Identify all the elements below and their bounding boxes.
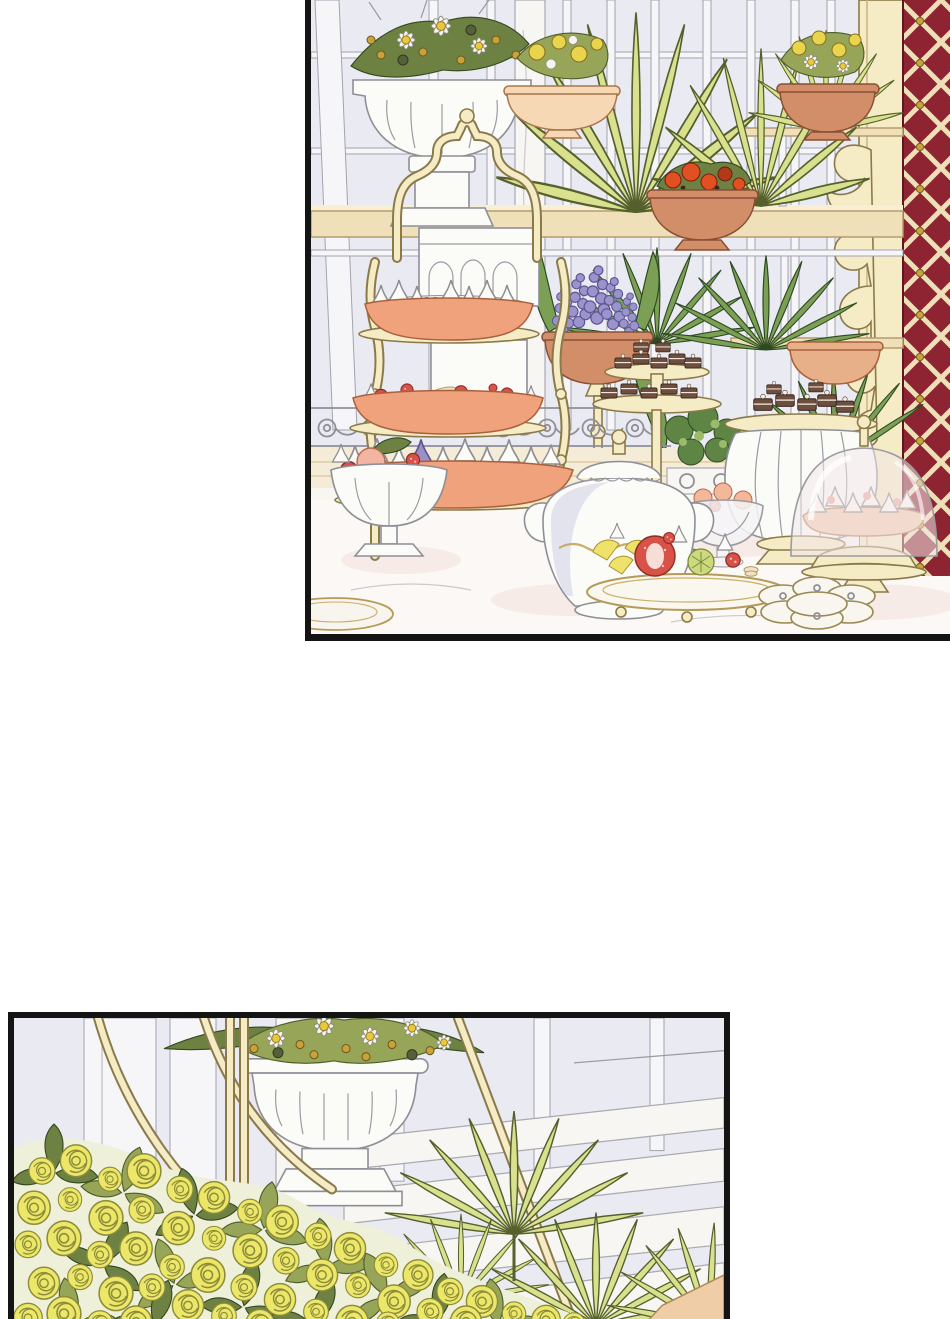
panel-bottom [8,1012,730,1319]
panel-top-art [311,0,950,634]
scalloped-dish [759,577,875,629]
panel-bottom-art [14,1018,724,1319]
panel-top [305,0,950,641]
comic-page [0,0,950,1319]
